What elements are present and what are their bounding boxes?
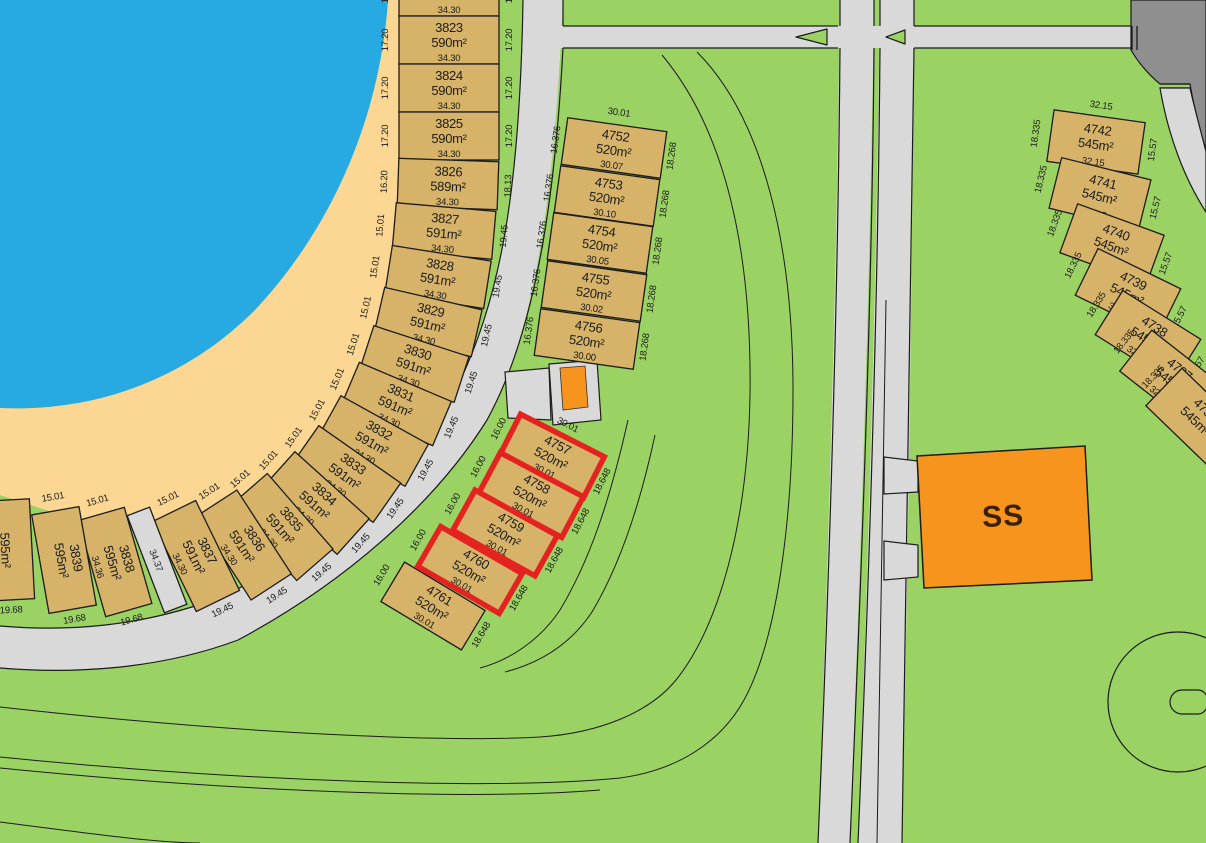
lot-3823[interactable]: 3823590m²34.30 [399, 16, 499, 64]
lot-frontage-dim: 34.30 [438, 149, 461, 160]
ss-driveway-south [884, 541, 918, 580]
ss-driveway-north [884, 457, 918, 494]
lot-road-side-dim: 17.20 [504, 29, 515, 52]
utility-driveway [505, 368, 551, 420]
lot-road-side-dim: 19.45 [498, 224, 511, 248]
lot-beach-side-dim: 16.20 [379, 170, 391, 193]
lot-area: 589m² [430, 178, 467, 194]
lot-area: 590m² [431, 131, 467, 146]
lot-beach-side-dim: 15.01 [374, 214, 387, 238]
lot-road-side-dim: 17.20 [504, 77, 515, 100]
subdivision-map: SS 590m²34.3017.2017.203823590m²34.3017.… [0, 0, 1206, 843]
lot-area: 595m² [0, 532, 14, 569]
lot-area: 591m² [426, 224, 463, 242]
lot-3824[interactable]: 3824590m²34.30 [399, 64, 499, 112]
lot-3825[interactable]: 3825590m²34.30 [399, 112, 499, 160]
lot-beach-side-dim: 17.20 [380, 29, 391, 52]
ss-building-label: SS [981, 499, 1025, 534]
lot-road-side-dim: 17.20 [504, 0, 515, 3]
lot-frontage-dim: 34.30 [438, 5, 461, 16]
lot-beach-side-dim: 17.20 [380, 0, 391, 3]
lot-frontage-dim: 34.30 [438, 53, 461, 64]
lot-area: 590m² [431, 0, 467, 2]
lot-road-side-dim: 17.20 [504, 125, 515, 148]
lot-road-side-dim: 18.13 [503, 175, 515, 198]
utility-orange-marker [560, 366, 588, 410]
lot-number: 3825 [435, 116, 463, 131]
lot-number: 3824 [435, 68, 463, 83]
lot-area: 590m² [431, 35, 467, 50]
lot-beach-side-dim: 17.20 [380, 77, 391, 100]
map-canvas: SS 590m²34.3017.2017.203823590m²34.3017.… [0, 0, 1206, 843]
lot-area: 590m² [431, 83, 467, 98]
lot-3826[interactable]: 3826589m²34.30 [397, 158, 499, 209]
lot-frontage-dim: 34.30 [438, 101, 461, 112]
lot-partial[interactable]: 595m² [0, 499, 35, 601]
lot-number: 3823 [435, 20, 463, 35]
lot-partial[interactable]: 590m²34.30 [399, 0, 499, 16]
lot-road-side-dim: 19.68 [0, 604, 23, 616]
lot-number: 3826 [434, 164, 462, 180]
lot-beach-side-dim: 17.20 [380, 125, 391, 148]
